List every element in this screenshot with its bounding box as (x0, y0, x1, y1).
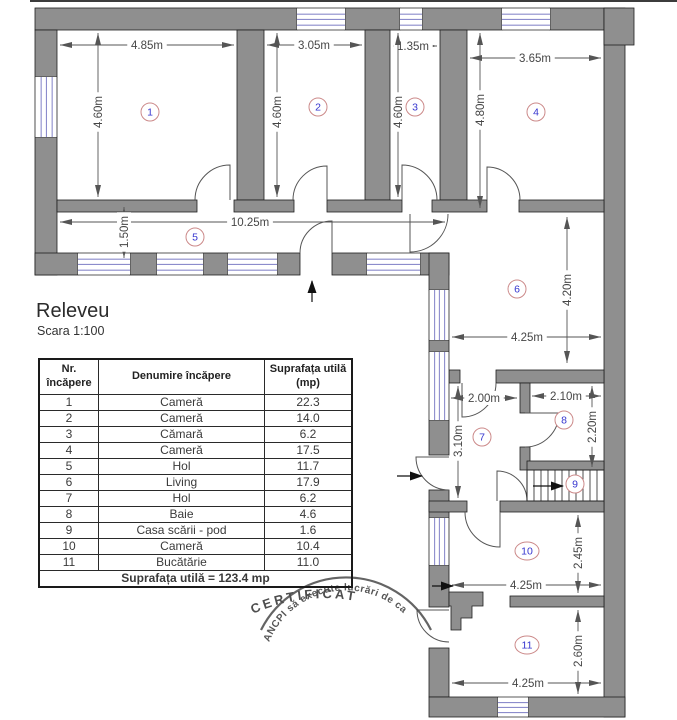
svg-text:6: 6 (514, 284, 520, 296)
room-number-badge: 2 (309, 98, 327, 116)
svg-text:3.10m: 3.10m (453, 425, 465, 457)
wall-segment (432, 200, 487, 212)
wall-segment (429, 420, 449, 455)
room-number-badge: 6 (508, 280, 526, 298)
svg-text:1: 1 (147, 107, 153, 119)
table-cell-area: 6.2 (265, 426, 353, 442)
table-cell-name: Baie (99, 506, 265, 522)
table-row: 10Cameră10.4 (39, 538, 352, 554)
svg-text:10.25m: 10.25m (231, 217, 269, 229)
dimension-label: 10.25m (227, 215, 273, 229)
wall-segment (130, 253, 157, 275)
svg-text:11: 11 (522, 640, 533, 652)
table-row: 11Bucătărie11.0 (39, 554, 352, 570)
wall-segment (500, 501, 604, 512)
table-row: 6Living17.9 (39, 474, 352, 490)
door-swing-icon (402, 165, 437, 200)
wall-segment (550, 8, 604, 30)
wall-segment (604, 8, 625, 717)
plan-scale-label: Scara 1:100 (37, 324, 104, 338)
wall-segment (422, 8, 502, 30)
svg-text:2: 2 (315, 102, 321, 114)
window-icon (429, 290, 449, 340)
plan-title: Releveu (36, 300, 109, 323)
table-cell-name: Hol (99, 490, 265, 506)
svg-text:4.25m: 4.25m (510, 580, 542, 592)
svg-text:4.60m: 4.60m (272, 96, 284, 128)
svg-text:5: 5 (192, 232, 198, 244)
svg-text:2.10m: 2.10m (550, 391, 582, 403)
col-header-name: Denumire încăpere (99, 359, 265, 394)
table-row: 2Cameră14.0 (39, 410, 352, 426)
wall-segment (365, 30, 390, 200)
dimension-label: 2.00m (464, 391, 504, 405)
svg-text:4: 4 (533, 107, 539, 119)
dimension-label: 4.80m (473, 90, 487, 130)
door-swing-icon (497, 471, 527, 501)
areas-table: Nr. încăpere Denumire încăpere Suprafața… (38, 358, 353, 588)
wall-segment (449, 370, 460, 383)
wall-segment (429, 501, 467, 512)
table-cell-nr: 4 (39, 442, 99, 458)
wall-segment (203, 253, 228, 275)
col-header-nr: Nr. încăpere (39, 359, 99, 394)
wall-segment (604, 8, 634, 45)
door-swing-icon (525, 413, 559, 447)
room-number-badge: 3 (406, 98, 424, 116)
wall-segment (429, 697, 498, 717)
floor-plan-document: 4.85m3.05m1.35m3.65m10.25m4.25m2.00m2.10… (0, 0, 677, 720)
svg-text:4.25m: 4.25m (511, 332, 543, 344)
dimension-label: 4.25m (507, 330, 547, 344)
svg-text:3: 3 (412, 102, 418, 114)
window-icon (78, 253, 130, 275)
door-swing-icon (293, 166, 327, 200)
dimension-label: 3.05m (294, 38, 334, 52)
door-swing-icon (410, 214, 448, 252)
svg-text:3.65m: 3.65m (519, 53, 551, 65)
room-number-badge: 5 (186, 228, 204, 246)
dimension-label: 2.20m (585, 407, 599, 447)
wall-segment (345, 8, 400, 30)
table-cell-name: Hol (99, 458, 265, 474)
door-swing-icon (195, 165, 230, 200)
svg-text:10: 10 (521, 546, 533, 558)
door-swing-icon (300, 221, 332, 253)
window-icon (228, 253, 277, 275)
svg-text:2.00m: 2.00m (468, 393, 500, 405)
table-cell-nr: 10 (39, 538, 99, 554)
dimension-label: 3.10m (451, 421, 465, 461)
wall-segment (519, 200, 604, 212)
table-row: 4Cameră17.5 (39, 442, 352, 458)
table-cell-name: Cameră (99, 538, 265, 554)
svg-text:2.20m: 2.20m (587, 411, 599, 443)
door-swing-icon (416, 457, 449, 490)
table-cell-area: 10.4 (265, 538, 353, 554)
dimension-label: 3.65m (515, 51, 555, 65)
table-cell-nr: 9 (39, 522, 99, 538)
window-icon (429, 518, 449, 565)
table-cell-nr: 5 (39, 458, 99, 474)
svg-text:4.60m: 4.60m (93, 96, 105, 128)
wall-segment (510, 596, 604, 607)
dimension-label: 1.35m (393, 39, 433, 53)
table-row: 9Casa scării - pod1.6 (39, 522, 352, 538)
room-number-badge: 10 (515, 542, 539, 560)
scan-border-artifact (30, 0, 677, 2)
table-row: 8Baie4.6 (39, 506, 352, 522)
room-number-badge: 8 (555, 411, 573, 429)
dimension-label: 4.20m (560, 270, 574, 310)
table-row: 1Cameră22.3 (39, 394, 352, 410)
table-cell-name: Cameră (99, 410, 265, 426)
table-cell-name: Living (99, 474, 265, 490)
certification-stamp: ANCPI să execute lucrări de ca CERTIFICA… (248, 577, 431, 645)
col-header-area: Suprafața utilă (mp) (265, 359, 353, 394)
dimension-label: 4.60m (391, 92, 405, 132)
dimension-label: 4.25m (506, 578, 546, 592)
wall-segment (327, 200, 402, 212)
wall-segment (35, 253, 78, 275)
svg-text:1.50m: 1.50m (119, 216, 131, 248)
svg-text:4.60m: 4.60m (393, 96, 405, 128)
window-icon (502, 8, 550, 30)
table-cell-area: 6.2 (265, 490, 353, 506)
areas-table-body: 1Cameră22.32Cameră14.03Cămară6.24Cameră1… (39, 394, 352, 570)
window-icon (400, 8, 422, 30)
table-cell-nr: 11 (39, 554, 99, 570)
wall-segment (237, 30, 264, 200)
dimension-label: 2.45m (571, 533, 585, 573)
table-cell-nr: 7 (39, 490, 99, 506)
wall-segment (528, 697, 625, 717)
room-number-badge: 7 (473, 428, 491, 446)
table-cell-area: 17.5 (265, 442, 353, 458)
svg-text:8: 8 (561, 415, 567, 427)
wall-segment (440, 30, 467, 200)
svg-text:4.80m: 4.80m (475, 94, 487, 126)
table-cell-name: Casa scării - pod (99, 522, 265, 538)
table-cell-area: 22.3 (265, 394, 353, 410)
wall-segment (57, 200, 197, 212)
dimension-label: 4.25m (508, 676, 548, 690)
window-icon (367, 253, 420, 275)
table-cell-nr: 6 (39, 474, 99, 490)
svg-text:4.20m: 4.20m (562, 274, 574, 306)
svg-text:3.05m: 3.05m (298, 40, 330, 52)
table-cell-name: Cameră (99, 442, 265, 458)
staircase (527, 470, 604, 501)
table-cell-area: 17.9 (265, 474, 353, 490)
table-row: 5Hol11.7 (39, 458, 352, 474)
chimney-wall (449, 592, 483, 630)
table-cell-area: 1.6 (265, 522, 353, 538)
svg-text:7: 7 (479, 432, 485, 444)
table-cell-area: 11.7 (265, 458, 353, 474)
table-cell-name: Cameră (99, 394, 265, 410)
dimension-label: 2.60m (571, 631, 585, 671)
wall-segment (520, 383, 530, 413)
total-area-label: Suprafața utilă = 123.4 mp (39, 570, 352, 587)
room-number-badge: 1 (141, 103, 159, 121)
door-swing-icon (487, 167, 520, 200)
window-icon (498, 697, 528, 717)
room-number-badge: 9 (566, 475, 584, 493)
wall-segment (35, 30, 57, 77)
wall-segment (277, 253, 300, 275)
wall-segment (429, 648, 449, 697)
wall-segment (429, 253, 449, 290)
svg-text:4.85m: 4.85m (131, 40, 163, 52)
door-swing-icon (465, 512, 500, 547)
table-cell-area: 4.6 (265, 506, 353, 522)
dimension-label: 2.10m (546, 389, 586, 403)
dimension-label: 1.50m (117, 212, 131, 252)
svg-text:2.45m: 2.45m (573, 537, 585, 569)
window-icon (157, 253, 203, 275)
wall-segment (332, 253, 367, 275)
wall-segment (429, 340, 449, 352)
stamp-certificat-text: CERTIFICAT (248, 586, 359, 617)
table-cell-nr: 2 (39, 410, 99, 426)
wall-segment (496, 370, 604, 383)
wall-segment (35, 8, 297, 30)
window-icon (35, 77, 57, 137)
dimension-label: 4.60m (270, 92, 284, 132)
window-icon (297, 8, 345, 30)
table-cell-nr: 1 (39, 394, 99, 410)
table-cell-area: 11.0 (265, 554, 353, 570)
table-cell-nr: 3 (39, 426, 99, 442)
room-number-badge: 4 (527, 103, 545, 121)
table-cell-name: Bucătărie (99, 554, 265, 570)
svg-text:2.60m: 2.60m (573, 635, 585, 667)
table-row: 7Hol6.2 (39, 490, 352, 506)
table-row: 3Cămară6.2 (39, 426, 352, 442)
table-cell-area: 14.0 (265, 410, 353, 426)
table-cell-name: Cămară (99, 426, 265, 442)
dimension-label: 4.85m (127, 38, 167, 52)
table-cell-nr: 8 (39, 506, 99, 522)
room-number-badge: 11 (515, 636, 539, 654)
window-icon (429, 352, 449, 420)
svg-text:4.25m: 4.25m (512, 678, 544, 690)
svg-text:1.35m: 1.35m (397, 41, 429, 53)
wall-segment (234, 200, 294, 212)
areas-table-header: Nr. încăpere Denumire încăpere Suprafața… (39, 359, 352, 394)
dimension-label: 4.60m (91, 92, 105, 132)
svg-text:9: 9 (572, 479, 578, 491)
